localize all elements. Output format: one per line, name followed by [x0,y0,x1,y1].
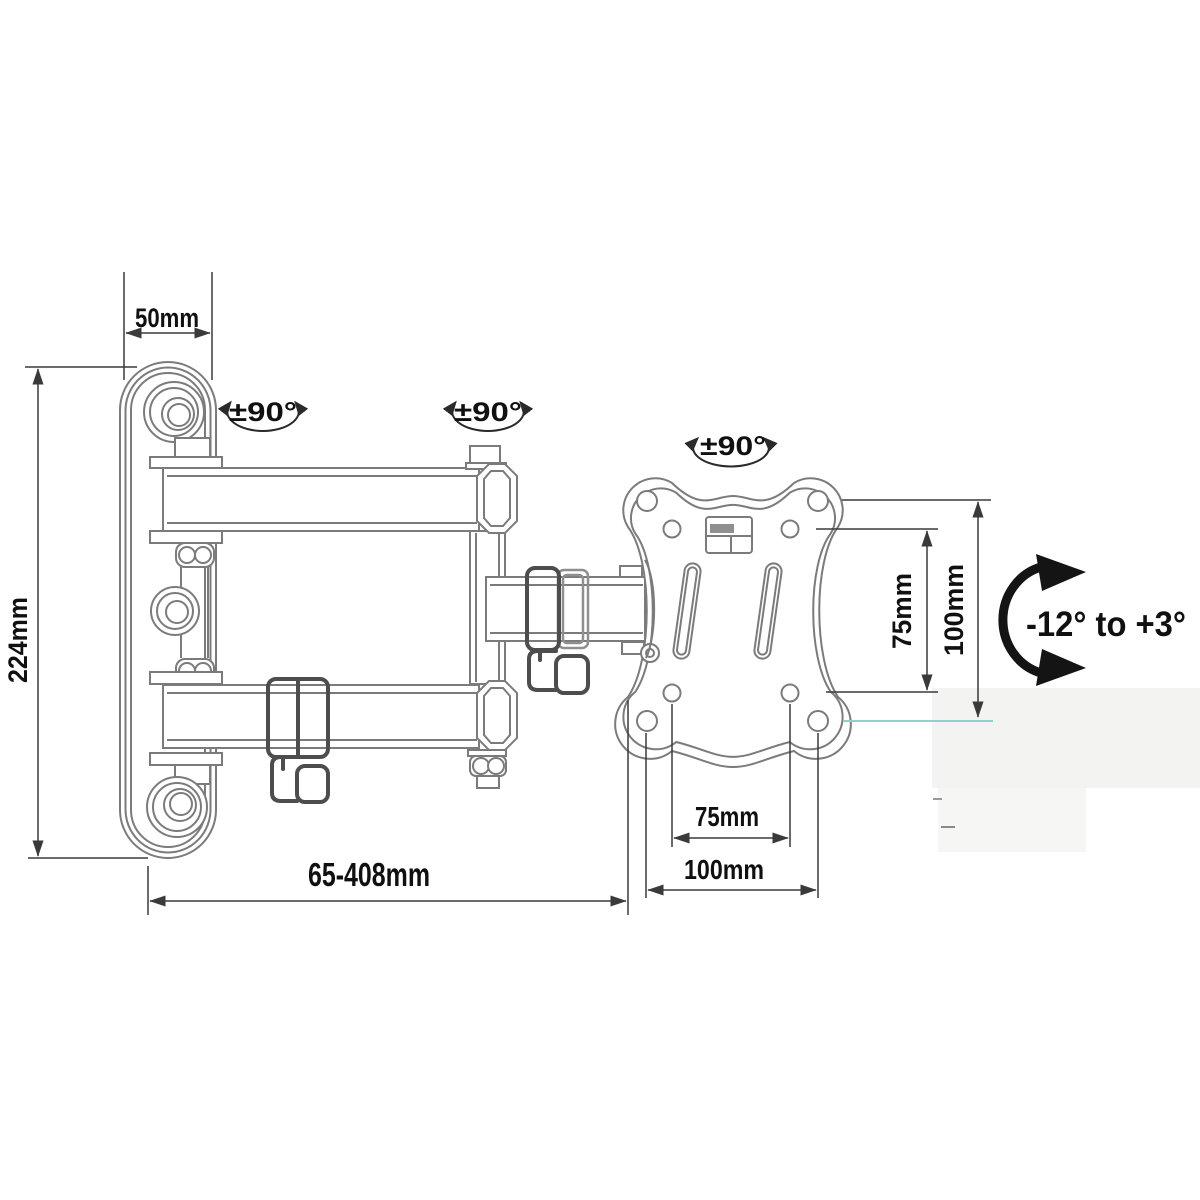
label-swivel-mid: ±90° [454,397,522,427]
swivel-annotation-mid: ±90° [452,397,524,431]
vesa-hole-inner-top-left [664,521,681,538]
label-plate-width: 50mm [135,303,199,333]
vesa-hole-outer-top-left [637,491,657,511]
label-vesa-width-outer: 100mm [684,854,764,885]
dimension-plate-height [25,367,148,858]
swivel-annotation-vesa: ±90° [693,431,769,466]
label-vesa-height-inner: 75mm [887,573,917,649]
vesa-plate [615,478,851,767]
label-vesa-height-outer: 100mm [939,564,969,656]
swivel-annotation-wall: ±90° [227,397,299,431]
tilt-arrow-down-icon [1036,649,1086,686]
quick-release-tab [706,517,752,553]
elbow-cap-lower [477,681,517,750]
vesa-hole-inner-bottom-right [782,685,799,702]
label-extension-range: 65-408mm [308,856,430,893]
arm-lower [163,685,479,748]
diagram-page: 50mm 224mm 65-408mm 75mm 100mm 75mm 100m… [0,0,1200,1200]
vesa-hole-outer-bottom-right [808,711,828,731]
vesa-hole-outer-top-right [808,491,828,511]
scan-shadow-artifacts [932,688,1200,852]
vesa-hole-inner-bottom-left [664,685,681,702]
arm-upper [163,468,479,531]
dimension-vesa-height-inner [816,529,938,692]
label-swivel-vesa: ±90° [700,431,766,461]
articulating-arms [163,446,645,788]
vesa-hole-outer-bottom-left [637,711,657,731]
arm-middle [486,577,645,641]
pivot-boss-middle [151,587,199,635]
vesa-hole-inner-top-right [782,521,799,538]
tilt-annotation: -12° to +3° [1003,554,1186,686]
elbow-lower-nut [468,750,506,788]
label-tilt-range: -12° to +3° [1026,605,1186,644]
label-vesa-width-inner: 75mm [695,801,759,832]
label-swivel-wall: ±90° [229,397,297,427]
wall-mount-dimension-drawing: 50mm 224mm 65-408mm 75mm 100mm 75mm 100m… [0,0,1200,1200]
label-plate-height: 224mm [3,597,33,683]
tilt-arrow-up-icon [1036,554,1086,591]
elbow-cap-upper [477,464,517,533]
